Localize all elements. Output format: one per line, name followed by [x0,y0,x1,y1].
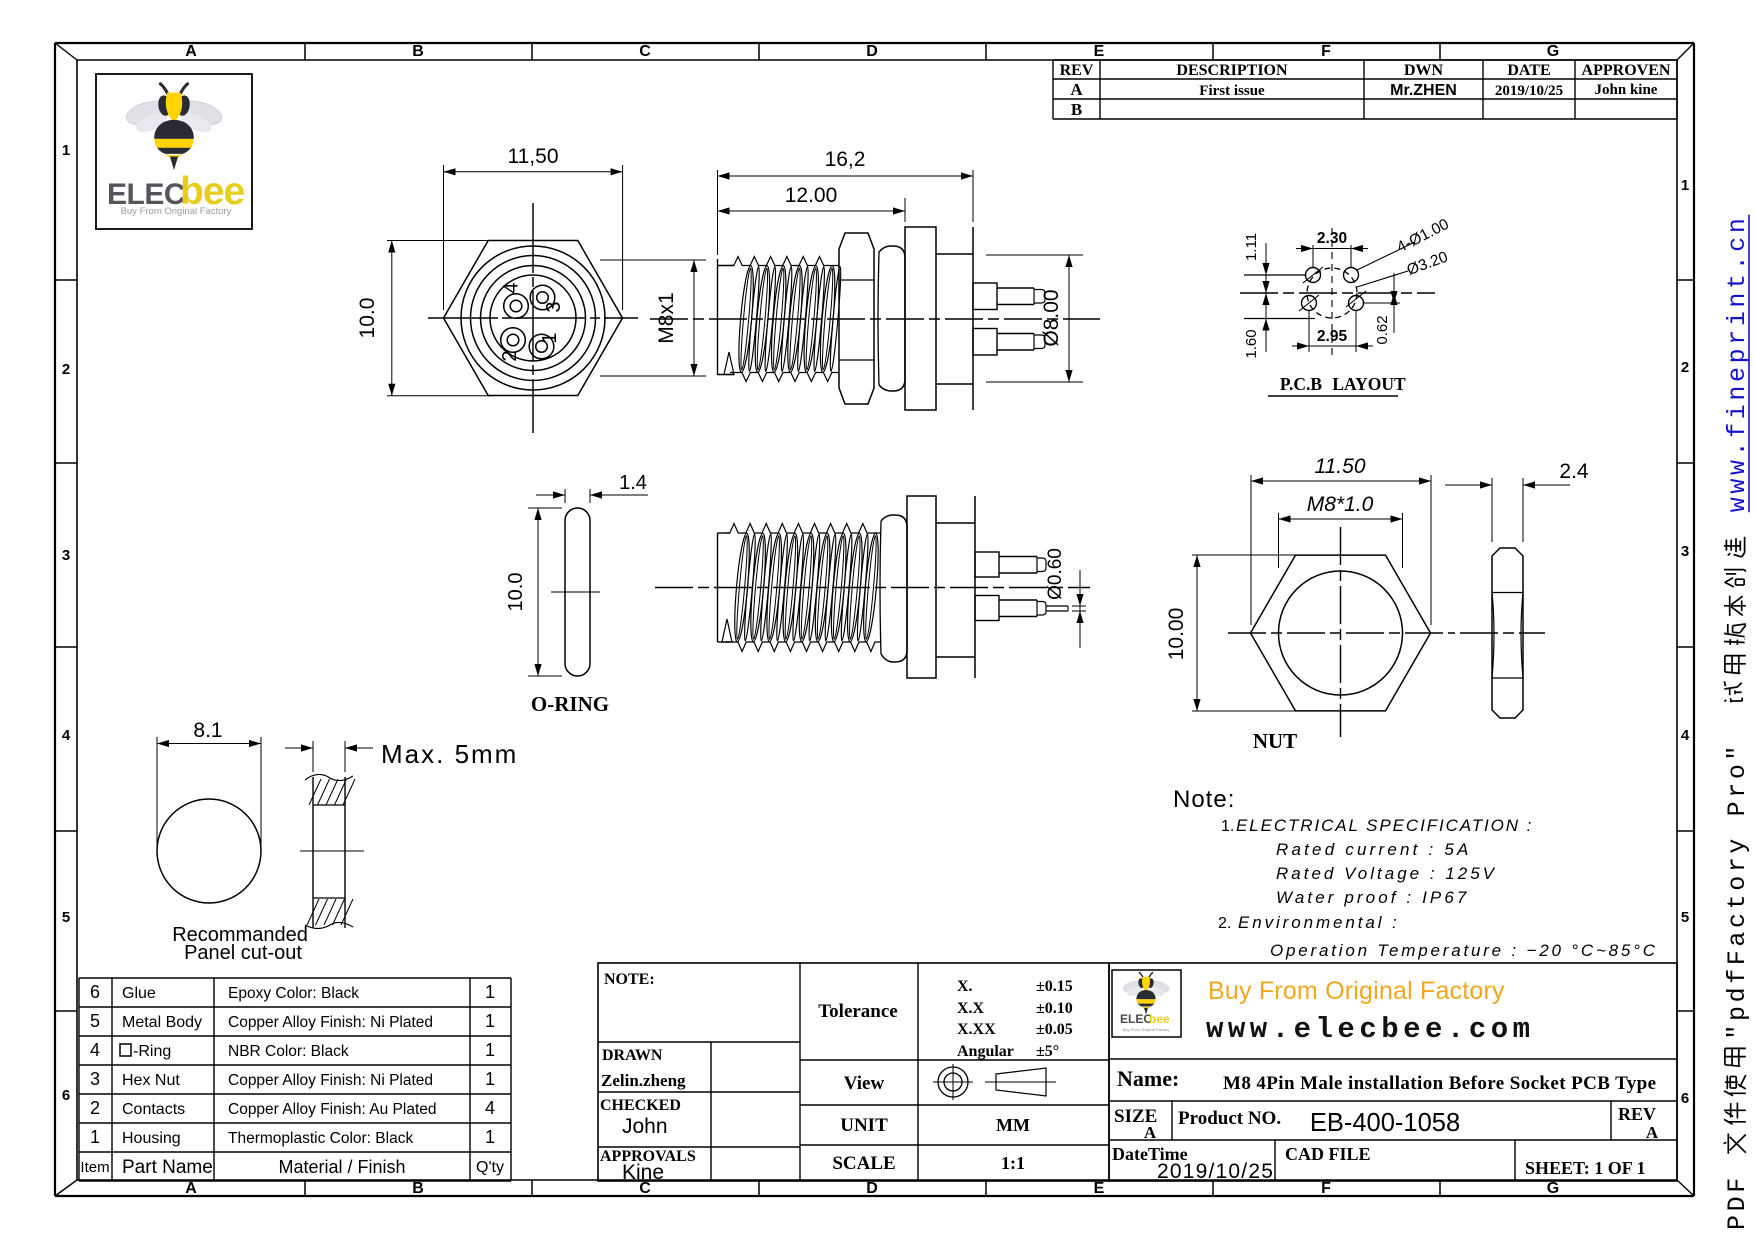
svg-text:D: D [866,43,878,60]
svg-text:Max. 5mm: Max. 5mm [381,739,518,769]
svg-text:NOTE:: NOTE: [604,971,655,988]
svg-text:Item: Item [80,1159,109,1176]
svg-text:X.XX: X.XX [957,1021,996,1038]
svg-text:±0.15: ±0.15 [1036,978,1073,995]
svg-text:View: View [844,1073,885,1094]
svg-text:Operation Temperature : −20: Operation Temperature : −20 °C~85°C [1270,941,1658,960]
svg-text:1: 1 [485,1127,495,1147]
svg-text:1:1: 1:1 [1001,1153,1025,1173]
svg-text:A: A [1646,1123,1659,1142]
svg-text:Panel cut-out: Panel cut-out [184,942,302,964]
svg-text:2.95: 2.95 [1317,328,1348,345]
svg-text:G: G [1547,43,1559,60]
svg-text:2: 2 [62,361,70,378]
svg-text:B: B [412,43,424,60]
svg-text:Metal Body: Metal Body [122,1014,202,1031]
svg-text:www.elecbee.com: www.elecbee.com [1206,1013,1535,1046]
svg-text:1.4: 1.4 [619,472,647,494]
svg-text:Contacts: Contacts [122,1101,185,1118]
svg-text:Water proof : IP67: Water proof : IP67 [1276,888,1469,907]
svg-text:John kine: John kine [1595,82,1658,98]
svg-text:1.: 1. [1221,818,1234,835]
svg-text:DWN: DWN [1404,62,1444,79]
svg-text:D: D [866,1180,878,1197]
svg-text:X.: X. [957,978,973,995]
svg-text:1.11: 1.11 [1243,233,1260,261]
svg-text:4: 4 [501,282,523,293]
svg-text:CHECKED: CHECKED [600,1097,681,1114]
svg-text:E: E [1094,43,1105,60]
svg-text:6: 6 [1681,1090,1689,1107]
svg-text:Angular: Angular [957,1043,1014,1060]
svg-text:Glue: Glue [122,985,156,1002]
svg-text:10.0: 10.0 [356,298,379,339]
svg-text:www.fineprint.cn: www.fineprint.cn [1723,215,1752,513]
svg-text:Hex Nut: Hex Nut [122,1072,180,1089]
svg-text:1: 1 [485,1011,495,1031]
svg-text:Rated Voltage : 125V: Rated Voltage : 125V [1276,864,1497,883]
svg-text:2019/10/25: 2019/10/25 [1495,83,1563,99]
svg-text:P.C.B: P.C.B [1280,374,1322,394]
svg-text:5: 5 [62,909,70,926]
svg-text:Copper Alloy Finish: Ni Pl: Copper Alloy Finish: Ni Plated [228,1072,433,1089]
svg-text:A: A [185,1180,197,1197]
svg-text:Buy From Original Factory: Buy From Original Factory [1208,977,1505,1005]
svg-text:Q'ty: Q'ty [476,1159,504,1176]
svg-text:5: 5 [1681,909,1689,926]
svg-text:F: F [1321,43,1331,60]
svg-text:"pdfFactory Pro": "pdfFactory Pro" [1723,742,1752,1040]
svg-text:0.62: 0.62 [1374,315,1391,344]
svg-text:M8x1: M8x1 [655,292,678,343]
svg-text:4: 4 [485,1098,495,1118]
svg-text:EB-400-1058: EB-400-1058 [1310,1109,1460,1137]
svg-text:First issue: First issue [1199,83,1265,99]
svg-text:UNIT: UNIT [840,1115,888,1136]
svg-text:11.50: 11.50 [1315,455,1366,478]
svg-text:Part Name: Part Name [122,1157,213,1178]
svg-text:8.1: 8.1 [193,719,222,742]
svg-text:3: 3 [1681,543,1689,560]
svg-text:G: G [1547,1180,1559,1197]
svg-text:-Ring: -Ring [133,1043,171,1060]
svg-text:REV: REV [1618,1104,1656,1124]
svg-text:A: A [1144,1123,1157,1142]
svg-text:Ø0.60: Ø0.60 [1045,548,1066,600]
svg-text:Epoxy Color: Black: Epoxy Color: Black [228,985,359,1002]
svg-text:5: 5 [90,1011,100,1031]
svg-text:1: 1 [539,332,561,343]
svg-text:REV: REV [1060,62,1094,79]
svg-text:Rated current : 5A: Rated current : 5A [1276,840,1472,859]
svg-text:SHEET: 1 OF 1: SHEET: 1 OF 1 [1525,1158,1646,1178]
svg-text:C: C [639,43,651,60]
svg-text:John: John [622,1115,668,1138]
svg-text:ELECTRICAL SPECIFICATION :: ELECTRICAL SPECIFICATION : [1236,816,1533,835]
svg-text:3: 3 [62,547,70,564]
svg-text:12.00: 12.00 [785,184,838,207]
svg-text:2.: 2. [1218,915,1231,932]
svg-text:1: 1 [1681,177,1689,194]
svg-text:ELEC: ELEC [1120,1012,1152,1026]
svg-text:1.60: 1.60 [1243,329,1260,358]
svg-text:Name:: Name: [1117,1066,1179,1091]
svg-text:±5°: ±5° [1036,1043,1059,1060]
svg-text:16,2: 16,2 [825,148,866,171]
svg-text:4: 4 [62,727,71,744]
svg-text:1: 1 [62,142,70,159]
svg-text:Copper Alloy Finish: Au Pl: Copper Alloy Finish: Au Plated [228,1101,437,1118]
svg-text:Tolerance: Tolerance [818,1001,898,1022]
svg-text:Product NO.: Product NO. [1178,1108,1281,1129]
svg-text:PDF: PDF [1723,1174,1752,1230]
svg-text:Buy From Original Factory: Buy From Original Factory [1123,1027,1170,1032]
svg-text:2019/10/25: 2019/10/25 [1157,1160,1274,1183]
svg-text:Mr.ZHEN: Mr.ZHEN [1390,82,1457,99]
svg-text:1: 1 [90,1127,100,1147]
svg-text:M8*1.0: M8*1.0 [1307,493,1374,516]
svg-text:Buy From Original Factory: Buy From Original Factory [121,206,232,217]
svg-text:NUT: NUT [1253,729,1297,753]
svg-text:Material / Finish: Material / Finish [278,1157,405,1177]
svg-text:LAYOUT: LAYOUT [1332,374,1406,394]
svg-text:APPROVEN: APPROVEN [1582,62,1671,79]
svg-text:M8 4Pin Male installation Befo: M8 4Pin Male installation Before Socket … [1223,1073,1656,1094]
svg-text:X.X: X.X [957,1000,985,1017]
svg-text:E: E [1094,1180,1105,1197]
svg-text:±0.05: ±0.05 [1036,1021,1073,1038]
svg-text:Zelin.zheng: Zelin.zheng [601,1071,686,1090]
svg-text:10.00: 10.00 [1165,608,1188,661]
svg-text:2: 2 [499,350,521,361]
svg-text:2: 2 [1681,359,1689,376]
svg-text:A: A [185,43,197,60]
svg-text:2: 2 [90,1098,100,1118]
svg-text:B: B [1071,100,1082,119]
svg-text:DESCRIPTION: DESCRIPTION [1176,62,1288,79]
svg-text:6: 6 [62,1087,70,1104]
svg-text:3: 3 [90,1069,100,1089]
svg-text:CAD FILE: CAD FILE [1285,1144,1371,1164]
svg-text:Ø8.00: Ø8.00 [1040,289,1063,346]
svg-text:4: 4 [1681,727,1690,744]
svg-text:F: F [1321,1180,1331,1197]
svg-text:Copper Alloy Finish: Ni Pl: Copper Alloy Finish: Ni Plated [228,1014,433,1031]
svg-text:NBR Color: Black: NBR Color: Black [228,1043,349,1060]
svg-text:6: 6 [90,982,100,1002]
svg-text:DRAWN: DRAWN [602,1047,663,1064]
svg-text:11,50: 11,50 [508,145,559,168]
svg-text:O-RING: O-RING [531,692,609,716]
svg-text:Kine: Kine [622,1161,664,1184]
svg-text:bee: bee [1149,1012,1170,1026]
svg-text:Environmental :: Environmental : [1238,913,1400,932]
svg-text:2.30: 2.30 [1317,230,1347,247]
svg-text:Housing: Housing [122,1130,181,1147]
svg-text:DATE: DATE [1507,62,1550,79]
svg-text:1: 1 [485,1040,495,1060]
svg-text:±0.10: ±0.10 [1036,1000,1073,1017]
svg-text:4: 4 [90,1040,100,1060]
svg-text:1: 1 [485,1069,495,1089]
svg-text:Thermoplastic Color: Black: Thermoplastic Color: Black [228,1130,413,1147]
svg-text:Note:: Note: [1173,786,1235,813]
svg-text:B: B [412,1180,424,1197]
svg-text:2.4: 2.4 [1559,460,1589,483]
svg-text:1: 1 [485,982,495,1002]
svg-text:MM: MM [996,1115,1030,1135]
svg-text:A: A [1070,80,1083,99]
svg-text:SCALE: SCALE [832,1153,895,1174]
svg-text:10.0: 10.0 [505,573,527,612]
svg-text:3: 3 [543,301,565,312]
